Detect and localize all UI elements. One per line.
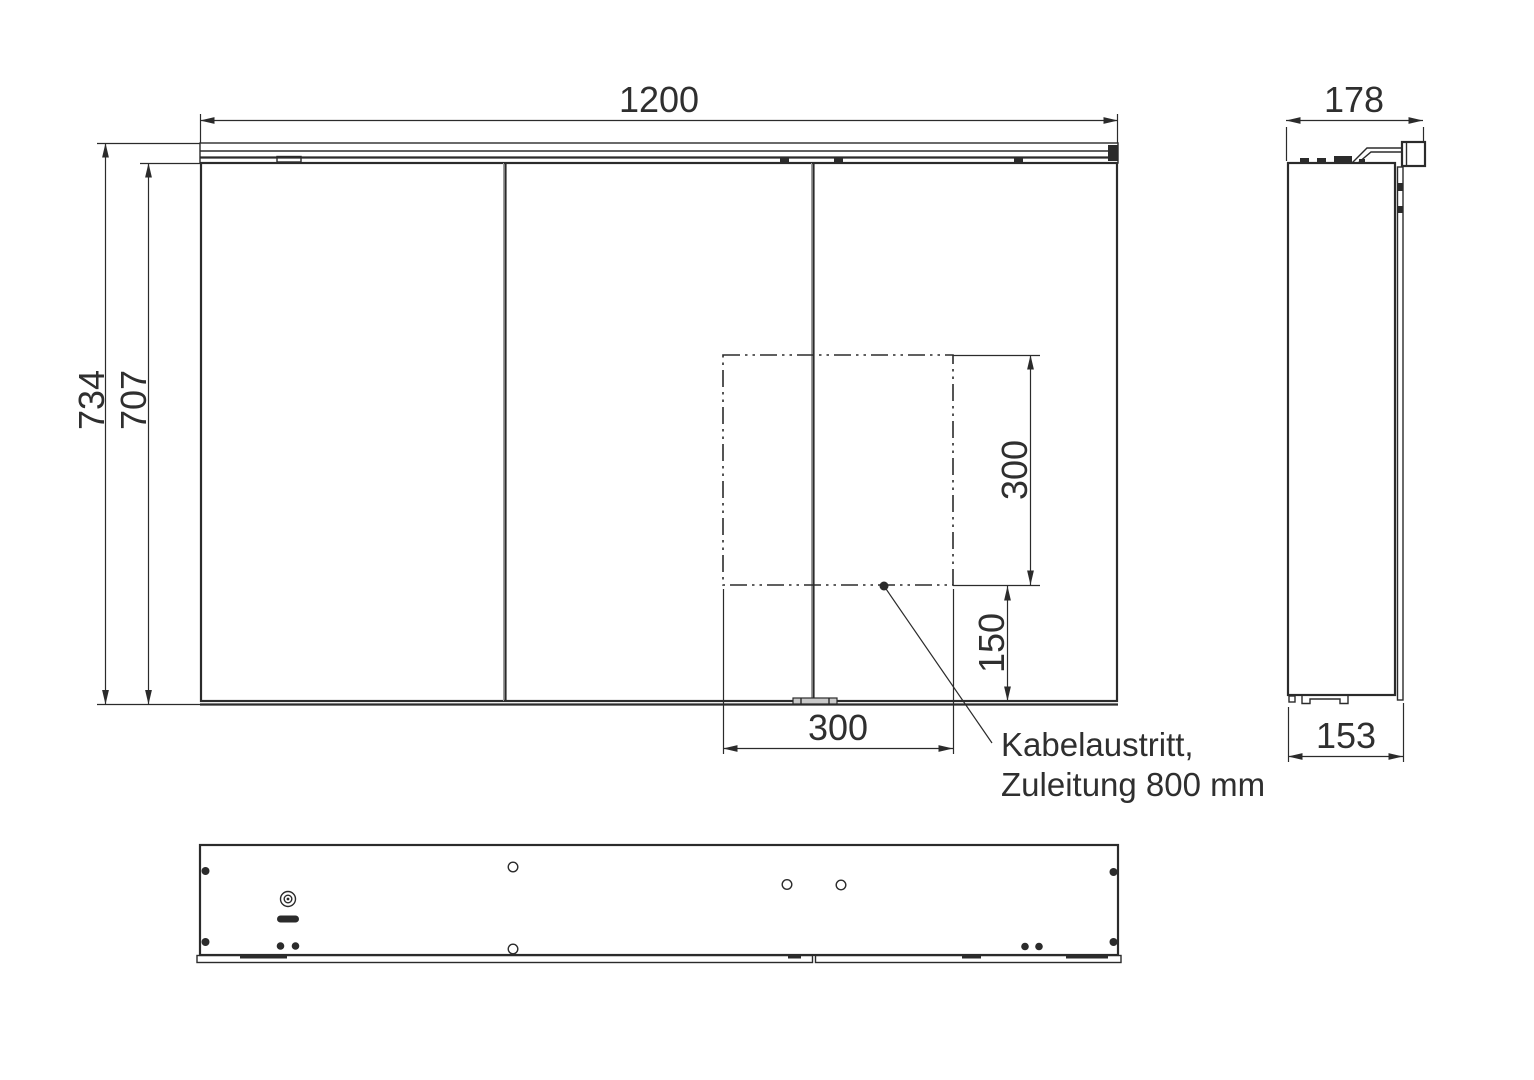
- screw: [1110, 938, 1118, 946]
- dim-cutout-width-300: 300: [723, 589, 954, 754]
- dim-carcass-depth-label: 153: [1316, 715, 1376, 756]
- dim-cutout-height-label: 300: [994, 440, 1035, 500]
- rail-end-cap: [1108, 145, 1118, 161]
- mirror-cabinet-drawing: 1200 734 707 300 150 300 Kabelaustritt, …: [0, 0, 1534, 1080]
- mounting-hole: [508, 862, 518, 872]
- wall-bracket-box: [1402, 142, 1425, 166]
- dim-carcass-height-label: 707: [113, 370, 154, 430]
- screw: [202, 938, 210, 946]
- screw: [202, 867, 210, 875]
- cable-annotation-line1: Kabelaustritt,: [1001, 726, 1194, 763]
- dim-cutout-height-300: 300: [953, 355, 1040, 586]
- screw: [1110, 868, 1118, 876]
- light-rail: [200, 143, 1118, 163]
- bottom-carcass: [200, 845, 1118, 955]
- bottom-door-strip-left: [197, 956, 813, 963]
- dim-carcass-depth-153: 153: [1288, 703, 1404, 762]
- technical-drawing-page: 1200 734 707 300 150 300 Kabelaustritt, …: [0, 0, 1534, 1080]
- cable-cutout: [723, 355, 992, 743]
- dim-width-1200: 1200: [200, 79, 1118, 143]
- mounting-hole: [782, 880, 792, 890]
- dim-width-label: 1200: [619, 79, 699, 120]
- side-carcass: [1288, 163, 1395, 695]
- side-view: [1288, 142, 1425, 704]
- dim-total-depth-label: 178: [1324, 79, 1384, 120]
- cable-annotation: Kabelaustritt, Zuleitung 800 mm: [1001, 726, 1265, 803]
- bottom-view: [197, 845, 1121, 963]
- bottom-recess: [1302, 695, 1348, 704]
- dim-carcass-height-707: 707: [113, 163, 201, 705]
- mounting-hole: [836, 880, 846, 890]
- dim-cutout-width-label: 300: [808, 707, 868, 748]
- cable-cutout-region: [723, 355, 953, 585]
- dim-cutout-offset-150: 150: [971, 586, 1012, 701]
- mounting-hole: [508, 944, 518, 954]
- side-door-panel: [1398, 167, 1404, 700]
- dim-total-height-label: 734: [71, 370, 112, 430]
- cable-annotation-line2: Zuleitung 800 mm: [1001, 766, 1265, 803]
- vent-slot: [277, 916, 299, 923]
- dim-cutout-offset-label: 150: [971, 613, 1012, 673]
